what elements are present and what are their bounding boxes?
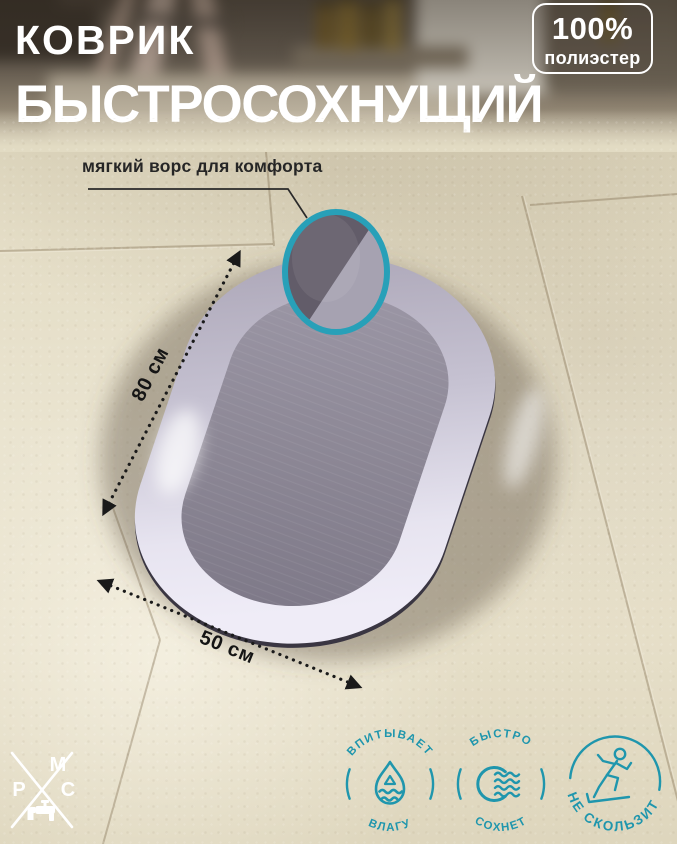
svg-text:НЕ СКОЛЬЗИТ: НЕ СКОЛЬЗИТ	[564, 790, 662, 834]
logo-letter-left: Р	[12, 779, 25, 801]
svg-text:БЫСТРО: БЫСТРО	[468, 728, 534, 749]
logo-letter-right: С	[61, 779, 75, 801]
svg-text:ВПИТЫВАЕТ: ВПИТЫВАЕТ	[345, 728, 435, 758]
feature-absorbs-moisture: ВПИТЫВАЕТ ВЛАГУ	[334, 716, 446, 844]
badge-arc	[347, 769, 350, 798]
dimension-arrow-length: 80 см	[106, 257, 237, 509]
svg-text:ВЛАГУ: ВЛАГУ	[367, 817, 414, 834]
feature-label-bottom: ВЛАГУ	[367, 817, 414, 834]
feature-dries-fast: БЫСТРО СОХНЕТ	[445, 716, 557, 844]
badge-arc	[458, 769, 461, 798]
feature-label-arc: НЕ СКОЛЬЗИТ	[564, 790, 662, 834]
feature-label-bottom: СОХНЕТ	[473, 815, 530, 834]
dimension-length-label: 80 см	[128, 344, 174, 405]
badge-arc	[430, 769, 433, 798]
texture-magnifier	[280, 205, 402, 345]
product-infographic: КОВРИК БЫСТРОСОХНУЩИЙ 100% полиэстер	[0, 0, 677, 844]
feature-label-top: ВПИТЫВАЕТ	[345, 728, 435, 758]
slipping-person-icon	[587, 749, 631, 802]
dimension-arrow-width: 50 см	[104, 583, 355, 685]
callout-label: мягкий ворс для комфорта	[82, 156, 322, 177]
drying-waves-icon	[478, 768, 519, 801]
feature-non-slip: НЕ СКОЛЬЗИТ	[556, 712, 674, 844]
callout-leader-line	[88, 189, 307, 218]
logo-letter-top: М	[50, 754, 67, 776]
svg-text:СОХНЕТ: СОХНЕТ	[473, 815, 530, 834]
feature-label-top: БЫСТРО	[468, 728, 534, 749]
brand-logo: М Р С	[6, 742, 90, 838]
badge-arc	[541, 769, 544, 798]
water-drop-icon	[376, 762, 404, 803]
